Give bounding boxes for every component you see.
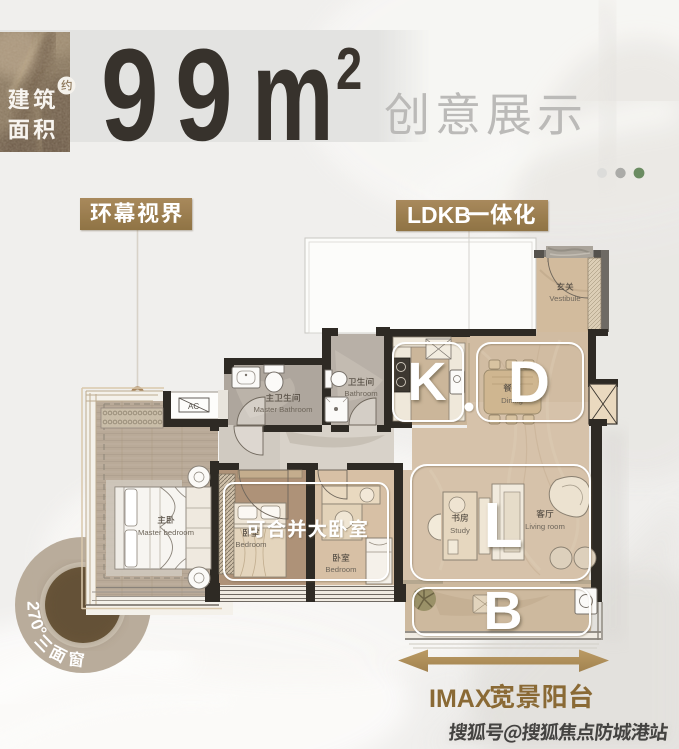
- svg-text:Master bedroom: Master bedroom: [138, 528, 194, 537]
- svg-text:Living room: Living room: [525, 522, 565, 531]
- svg-text:B: B: [484, 581, 523, 641]
- svg-text:Master Bathroom: Master Bathroom: [254, 405, 313, 414]
- svg-text:AC: AC: [188, 402, 199, 411]
- svg-text:Bedroom: Bedroom: [325, 565, 356, 574]
- svg-text:99: 99: [101, 22, 249, 168]
- svg-text:Vestibule: Vestibule: [549, 294, 580, 303]
- svg-text:IMAX: IMAX: [429, 685, 492, 713]
- svg-text:Study: Study: [450, 526, 470, 535]
- svg-text:m: m: [252, 22, 334, 168]
- svg-text:L: L: [483, 489, 522, 561]
- svg-text:D: D: [508, 350, 550, 415]
- svg-text:Bedroom: Bedroom: [235, 540, 266, 549]
- svg-text:2: 2: [336, 37, 362, 102]
- svg-text:K: K: [408, 352, 447, 412]
- svg-text:Bathroom: Bathroom: [344, 389, 377, 398]
- svg-text:LDKB: LDKB: [407, 202, 471, 228]
